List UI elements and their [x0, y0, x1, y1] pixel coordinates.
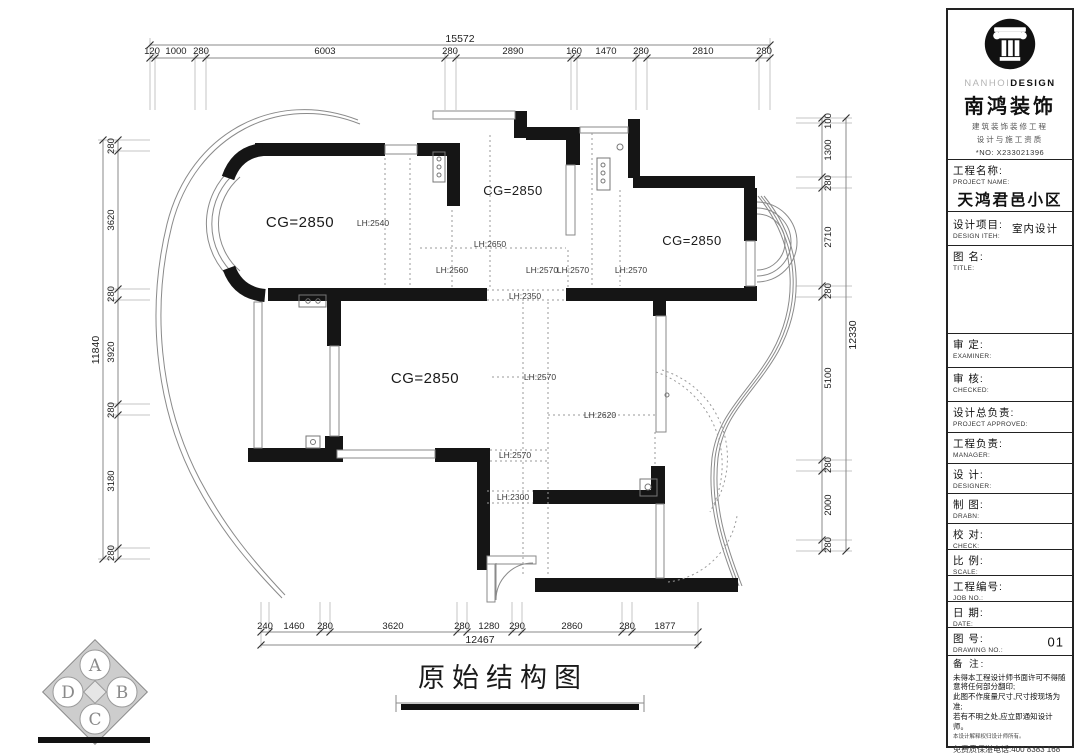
- dims-right: 12330 100 1300 280 2710 280 5100 280 200…: [823, 113, 859, 553]
- draftsman-row: 制 图: DRABN:: [948, 494, 1072, 524]
- dim-left-overall: 11840: [90, 336, 102, 365]
- lh-label-1: LH:2650: [474, 239, 506, 249]
- dim-left-seg-2: 280: [106, 286, 117, 302]
- examiner-row: 审 定: EXAMINER:: [948, 334, 1072, 368]
- lh-label-2: LH:2560: [436, 265, 468, 275]
- compass-letter-a: A: [88, 656, 102, 676]
- dim-right-seg-0: 100: [823, 113, 834, 129]
- project-approved-row: 设计总负责: PROJECT APPROVED:: [948, 402, 1072, 433]
- checked-label-cn: 审 核:: [953, 371, 1067, 386]
- dim-bottom-seg-0: 240: [257, 621, 273, 632]
- notes-line-1: 未得本工程设计师书面许可不得随意将任何部分翻印;: [953, 673, 1067, 693]
- dim-right-seg-8: 280: [823, 537, 834, 553]
- lh-label-10: LH:2300: [497, 492, 529, 502]
- dim-top-seg-7: 1470: [595, 46, 616, 57]
- warranty-phone: 免费质保湛电话:400 8383 168: [953, 745, 1067, 756]
- drawing-name-label-en: TITLE:: [953, 265, 1067, 272]
- date-label-cn: 日 期:: [953, 605, 1067, 620]
- dim-top-seg-4: 280: [442, 46, 458, 57]
- dim-bottom-seg-3: 3620: [382, 621, 403, 632]
- dim-right-overall: 12330: [847, 320, 859, 349]
- dim-bottom-overall: 12467: [465, 634, 494, 646]
- check-label-cn: 校 对:: [953, 527, 1067, 542]
- drawing-sheet: 15572 120 1000 280 6003 280 2890 160 147…: [0, 0, 1080, 756]
- company-header: NANHOIDESIGN 南鸿装饰 建筑装饰装修工程 设计与施工资质 *NO: …: [948, 10, 1072, 160]
- fixtures: [299, 144, 657, 496]
- dim-top-seg-9: 2810: [692, 46, 713, 57]
- dim-left-seg-6: 280: [106, 545, 117, 561]
- dim-bottom-seg-4: 280: [454, 621, 470, 632]
- manager-row: 工程负责: MANAGER:: [948, 433, 1072, 464]
- project-approved-label-cn: 设计总负责:: [953, 405, 1067, 420]
- room-label-cg-1: CG=2850: [266, 214, 334, 231]
- brand-slogan-1: 建筑装饰装修工程: [953, 121, 1067, 132]
- design-item-label-cn: 设计项目:: [953, 217, 1003, 232]
- dim-bottom-seg-7: 2860: [561, 621, 582, 632]
- drawing-name-label-cn: 图 名:: [953, 249, 1067, 264]
- notes-section: 备 注: 未得本工程设计师书面许可不得随意将任何部分翻印; 此图不作度量尺寸,尺…: [948, 656, 1072, 756]
- dim-top-seg-0: 120: [144, 46, 160, 57]
- dim-top-overall: 15572: [445, 33, 474, 45]
- dimension-lines: [103, 45, 846, 645]
- dim-right-seg-6: 280: [823, 457, 834, 473]
- extension-lines: [98, 38, 852, 648]
- dim-top-seg-3: 6003: [314, 46, 335, 57]
- job-no-row: 工程编号: JOB NO.:: [948, 576, 1072, 602]
- company-logo-icon: [982, 16, 1038, 72]
- dim-top-seg-8: 280: [633, 46, 649, 57]
- lh-label-4: LH:2570: [557, 265, 589, 275]
- drawing-no-row: 图 号: DRAWING NO.: 01: [948, 628, 1072, 656]
- lh-label-0: LH:2540: [357, 218, 389, 228]
- room-label-cg-4: CG=2850: [391, 370, 459, 387]
- designer-label-cn: 设 计:: [953, 467, 1067, 482]
- notes-line-3: 若有不明之处,应立即通知设计师。: [953, 712, 1067, 732]
- dim-bottom-seg-9: 1877: [654, 621, 675, 632]
- lh-label-8: LH:2620: [584, 410, 616, 420]
- notes-line-2: 此图不作度量尺寸,尺寸按现场为准;: [953, 692, 1067, 712]
- project-name-value: 天鸿君邑小区: [953, 188, 1067, 210]
- dim-right-seg-5: 5100: [823, 367, 834, 388]
- title-block: NANHOIDESIGN 南鸿装饰 建筑装饰装修工程 设计与施工资质 *NO: …: [946, 8, 1074, 748]
- project-approved-label-en: PROJECT APPROVED:: [953, 421, 1067, 428]
- design-item-row: 设计项目: DESIGN ITEH: 室内设计: [948, 212, 1072, 246]
- manager-label-en: MANAGER:: [953, 452, 1067, 459]
- dim-top-seg-5: 2890: [502, 46, 523, 57]
- checked-row: 审 核: CHECKED:: [948, 368, 1072, 402]
- dims-bottom: 12467 240 1460 280 3620 280 1280 290 286…: [257, 621, 676, 646]
- lh-label-7: LH:2570: [524, 372, 556, 382]
- brand-en-grey: NANHOI: [964, 78, 1010, 89]
- dim-right-seg-4: 280: [823, 283, 834, 299]
- compass-letter-b: B: [116, 683, 129, 703]
- scale-row: 比 例: SCALE:: [948, 550, 1072, 576]
- dim-bottom-seg-5: 1280: [478, 621, 499, 632]
- project-name-row: 工程名称: PROJECT NAME: 天鸿君邑小区: [948, 160, 1072, 212]
- dimension-ticks: [100, 42, 850, 649]
- checked-label-en: CHECKED:: [953, 387, 1067, 394]
- check-row: 校 对: CHECK:: [948, 524, 1072, 550]
- dim-left-seg-4: 280: [106, 402, 117, 418]
- dim-left-seg-3: 3920: [106, 341, 117, 362]
- design-item-value: 室内设计: [1003, 221, 1067, 236]
- brand-en-black: DESIGN: [1010, 78, 1055, 89]
- room-label-cg-3: CG=2850: [662, 233, 722, 248]
- drawing-name-row: 图 名: TITLE:: [948, 246, 1072, 334]
- dim-right-seg-2: 280: [823, 175, 834, 191]
- date-label-en: DATE:: [953, 621, 1067, 628]
- dim-right-seg-3: 2710: [823, 226, 834, 247]
- date-row: 日 期: DATE:: [948, 602, 1072, 628]
- draftsman-label-en: DRABN:: [953, 513, 1067, 520]
- manager-label-cn: 工程负责:: [953, 436, 1067, 451]
- draftsman-label-cn: 制 图:: [953, 497, 1067, 512]
- lh-label-3: LH:2570: [526, 265, 558, 275]
- compass-letter-c: C: [88, 710, 101, 730]
- scale-label-cn: 比 例:: [953, 553, 1067, 568]
- dim-top-seg-6: 160: [566, 46, 582, 57]
- designer-row: 设 计: DESIGNER:: [948, 464, 1072, 494]
- dim-top-seg-2: 280: [193, 46, 209, 57]
- job-no-label-cn: 工程编号:: [953, 579, 1067, 594]
- notes-label: 备 注:: [953, 659, 1067, 672]
- dim-bottom-seg-1: 1460: [283, 621, 304, 632]
- job-no-label-en: JOB NO.:: [953, 595, 1067, 602]
- dim-right-seg-1: 1300: [823, 139, 834, 160]
- dim-right-seg-7: 2000: [823, 494, 834, 515]
- scale-label-en: SCALE:: [953, 569, 1067, 576]
- lh-label-9: LH:2570: [499, 450, 531, 460]
- title-underline-bar: [401, 704, 639, 710]
- project-name-label-en: PROJECT NAME:: [953, 179, 1067, 186]
- drawing-no-value: 01: [1048, 634, 1064, 649]
- dim-left-seg-1: 3620: [106, 209, 117, 230]
- design-item-label-en: DESIGN ITEH:: [953, 233, 1003, 240]
- lh-label-6: LH:2350: [509, 291, 541, 301]
- dim-top-seg-1: 1000: [165, 46, 186, 57]
- floor-plan: 15572 120 1000 280 6003 280 2890 160 147…: [0, 0, 940, 756]
- dim-left-seg-0: 280: [106, 138, 117, 154]
- examiner-label-en: EXAMINER:: [953, 353, 1067, 360]
- examiner-label-cn: 审 定:: [953, 337, 1067, 352]
- dim-bottom-seg-6: 290: [509, 621, 525, 632]
- drawing-title: 原始结构图: [396, 663, 644, 712]
- dim-left-seg-5: 3180: [106, 470, 117, 491]
- brand-slogan-2: 设计与施工资质: [953, 134, 1067, 145]
- project-name-label-cn: 工程名称:: [953, 163, 1067, 178]
- designer-label-en: DESIGNER:: [953, 483, 1067, 490]
- dim-bottom-seg-8: 280: [619, 621, 635, 632]
- brand-cn: 南鸿装饰: [953, 90, 1067, 119]
- compass-letter-d: D: [61, 683, 75, 703]
- drawing-title-text: 原始结构图: [418, 663, 588, 693]
- dim-bottom-seg-2: 280: [317, 621, 333, 632]
- compass-diamond: A B C D: [43, 640, 148, 745]
- dashed-lines: [385, 133, 737, 582]
- dim-top-seg-10: 280: [756, 46, 772, 57]
- check-label-en: CHECK:: [953, 543, 1067, 550]
- brand-license-no: *NO: X233021396: [953, 148, 1067, 157]
- notes-small-print: 本设计解释权归设计师所有。: [953, 734, 1067, 741]
- height-labels: LH:2540 LH:2650 LH:2560 LH:2570 LH:2570 …: [357, 218, 647, 502]
- lh-label-5: LH:2570: [615, 265, 647, 275]
- brand-en: NANHOIDESIGN: [953, 78, 1067, 89]
- margin-bar: [38, 737, 150, 743]
- room-label-cg-2: CG=2850: [483, 183, 543, 198]
